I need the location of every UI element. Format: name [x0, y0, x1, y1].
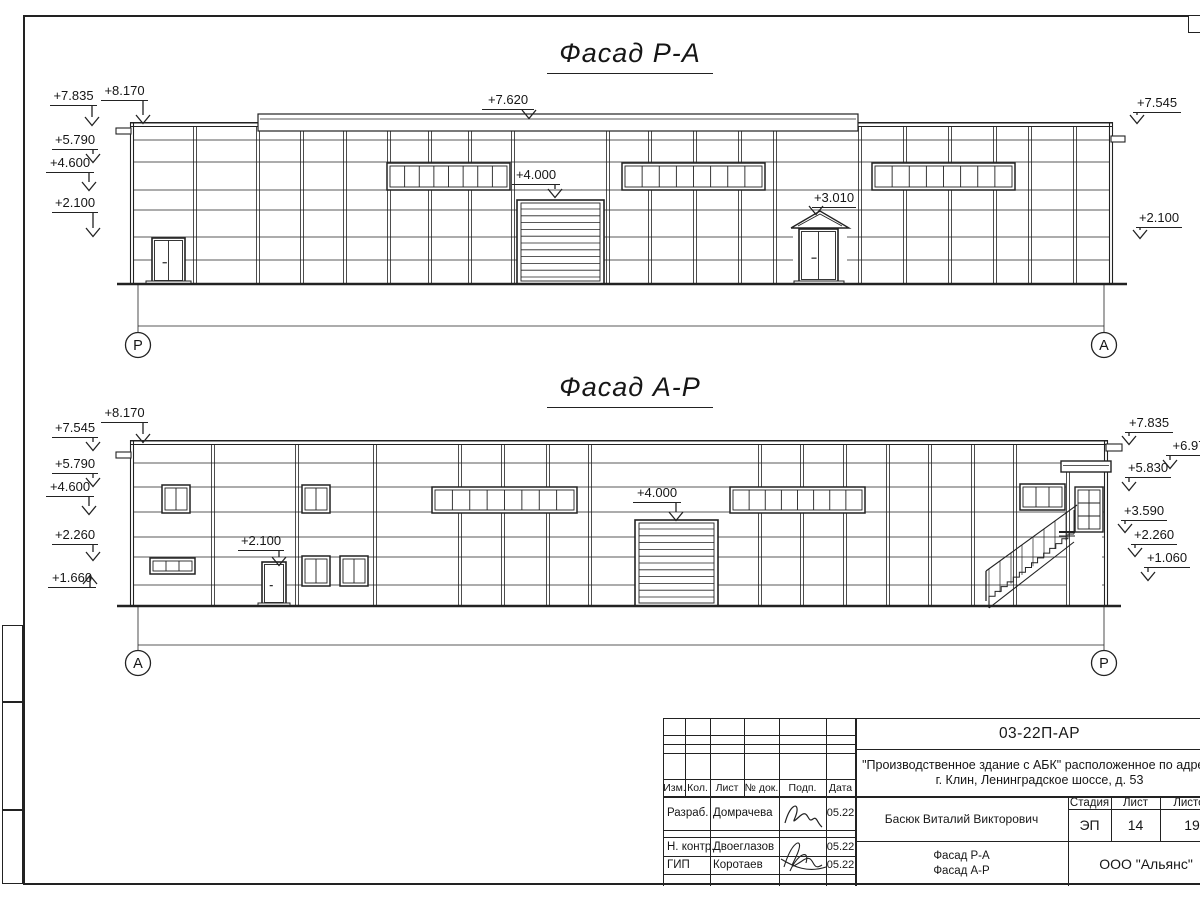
list-label: Лист: [1111, 796, 1160, 809]
elevation-mark: +4.000: [633, 486, 681, 503]
role-1-name: Домрачева: [710, 796, 782, 830]
elevation-mark: +5.790: [52, 457, 98, 474]
elevation-mark: +2.100: [52, 196, 98, 213]
elevation-label: +4.000: [633, 486, 681, 503]
role-2-date: 05.22: [826, 837, 855, 856]
sheet-name: Фасад Р-А Фасад А-Р: [855, 841, 1068, 886]
elevation-arrow-icon: [1121, 478, 1137, 493]
elevation-mark: +1.660: [48, 571, 96, 588]
elevation-label: +8.170: [101, 406, 148, 423]
elevation-label: +4.600: [46, 156, 94, 173]
elevation-label: +8.170: [101, 84, 148, 101]
axis-label-f1-right: А: [1091, 338, 1117, 354]
elevation-label: +2.100: [52, 196, 98, 213]
elevation-mark: +4.000: [512, 168, 560, 185]
stage-value: ЭП: [1068, 809, 1111, 841]
elevation-mark: +2.260: [1131, 528, 1177, 545]
role-2-name: Двоеглазов: [710, 837, 782, 856]
facade-1-title-text: Фасад Р-А: [547, 38, 712, 74]
elevation-label: +5.830: [1125, 461, 1171, 478]
rev-header-podp: Подп.: [779, 779, 826, 796]
elevation-label: +4.000: [512, 168, 560, 185]
elevation-arrow-icon: [1129, 113, 1145, 126]
elevation-mark: +7.545: [1133, 96, 1181, 113]
elevation-arrow-icon: [271, 551, 287, 568]
elevation-label: +2.260: [1131, 528, 1177, 545]
project-name-line1: "Производственное здание с АБК" располож…: [862, 758, 1200, 773]
company-name: ООО "Альянс": [1068, 841, 1200, 886]
role-3-name: Коротаев: [710, 856, 782, 874]
elevation-arrow-icon: [668, 503, 684, 523]
facade-2-title-text: Фасад А-Р: [547, 372, 712, 408]
total-value: 19: [1160, 809, 1200, 841]
signature-1-icon: [782, 799, 824, 829]
facade-1-drawing: [116, 114, 1127, 358]
elevation-arrow-icon: [1127, 545, 1143, 559]
elevation-arrow-icon: [1140, 568, 1156, 583]
elevation-arrow-icon: [547, 185, 563, 200]
elevation-arrow-icon: [85, 213, 101, 239]
doc-number: 03-22П-АР: [855, 719, 1200, 749]
elevation-label: +6.97: [1166, 439, 1200, 456]
elevation-mark: +2.260: [52, 528, 98, 545]
project-name: "Производственное здание с АБК" располож…: [855, 749, 1200, 796]
elevation-label: +7.545: [1133, 96, 1181, 113]
facade-1-title: Фасад Р-А: [470, 38, 790, 74]
elevation-mark: +7.835: [1125, 416, 1173, 433]
elevation-label: +7.835: [1125, 416, 1173, 433]
stage-label: Стадия: [1068, 796, 1111, 809]
elevation-arrow-icon: [81, 173, 97, 193]
elevation-arrow-icon: [84, 106, 100, 128]
drawing-sheet: { "colors": {"line": "#222222", "bg": "#…: [0, 0, 1200, 900]
elevation-mark: +6.97: [1166, 439, 1200, 456]
elevation-label: +3.590: [1121, 504, 1167, 521]
rev-header-kol: Кол.: [685, 779, 710, 796]
facade-2-drawing: [116, 440, 1122, 676]
elevation-mark: +2.100: [238, 534, 284, 551]
project-name-line2: г. Клин, Ленинградское шоссе, д. 53: [936, 773, 1144, 788]
elevation-mark: +3.010: [812, 191, 856, 208]
elevation-arrow-icon: [85, 438, 101, 453]
elevation-mark: +2.100: [1136, 211, 1182, 228]
elevation-mark: +4.600: [46, 156, 94, 173]
facade-2-title: Фасад А-Р: [470, 372, 790, 408]
rev-header-izm: Изм.: [664, 779, 685, 796]
elevation-arrow-icon: [81, 497, 97, 517]
axis-label-f2-left: А: [125, 656, 151, 672]
elevation-mark: +3.590: [1121, 504, 1167, 521]
elevation-arrow-icon: [135, 101, 151, 126]
elevation-label: +2.260: [52, 528, 98, 545]
title-block: Изм. Кол. Лист № док. Подп. Дата Разраб.…: [663, 718, 1200, 886]
rev-header-doc: № док.: [744, 779, 779, 796]
role-3-label: ГИП: [664, 856, 713, 874]
elevation-label: +7.620: [482, 93, 534, 110]
sheet-name-line2: Фасад А-Р: [933, 864, 989, 879]
role-2-label: Н. контр.: [664, 837, 713, 856]
elevation-mark: +7.545: [52, 421, 98, 438]
sheet-name-line1: Фасад Р-А: [933, 849, 989, 864]
role-1-label: Разраб.: [664, 796, 713, 830]
total-label: Листов: [1160, 796, 1200, 809]
role-1-date: 05.22: [826, 796, 855, 830]
elevation-mark: +5.830: [1125, 461, 1171, 478]
list-value: 14: [1111, 809, 1160, 841]
elevation-mark: +4.600: [46, 480, 94, 497]
elevation-arrow-icon: [521, 110, 537, 121]
elevation-arrow-icon: [1121, 433, 1137, 447]
elevation-arrow-icon: [85, 545, 101, 563]
elevation-label: +4.600: [46, 480, 94, 497]
elevation-mark: +7.620: [482, 93, 534, 110]
elevation-mark: +5.790: [52, 133, 98, 150]
author-name: Басюк Виталий Викторович: [855, 796, 1068, 841]
axis-label-f1-left: Р: [125, 338, 151, 354]
elevation-mark: +1.060: [1144, 551, 1190, 568]
axis-label-f2-right: Р: [1091, 656, 1117, 672]
elevation-label: +2.100: [1136, 211, 1182, 228]
elevation-mark: +8.170: [101, 406, 148, 423]
elevation-label: +5.790: [52, 133, 98, 150]
elevation-label: +3.010: [812, 191, 856, 208]
elevation-arrow-icon: [135, 423, 151, 445]
elevation-label: +7.835: [50, 89, 97, 106]
elevation-arrow-icon: [1132, 228, 1148, 241]
rev-header-data: Дата: [826, 779, 855, 796]
elevation-arrow-icon: [82, 574, 98, 590]
elevation-arrow-icon: [808, 208, 824, 217]
elevation-label: +7.545: [52, 421, 98, 438]
elevation-mark: +7.835: [50, 89, 97, 106]
elevation-label: +2.100: [238, 534, 284, 551]
elevation-label: +5.790: [52, 457, 98, 474]
elevation-label: +1.060: [1144, 551, 1190, 568]
role-3-date: 05.22: [826, 856, 855, 874]
elevation-mark: +8.170: [101, 84, 148, 101]
rev-header-list: Лист: [710, 779, 744, 796]
